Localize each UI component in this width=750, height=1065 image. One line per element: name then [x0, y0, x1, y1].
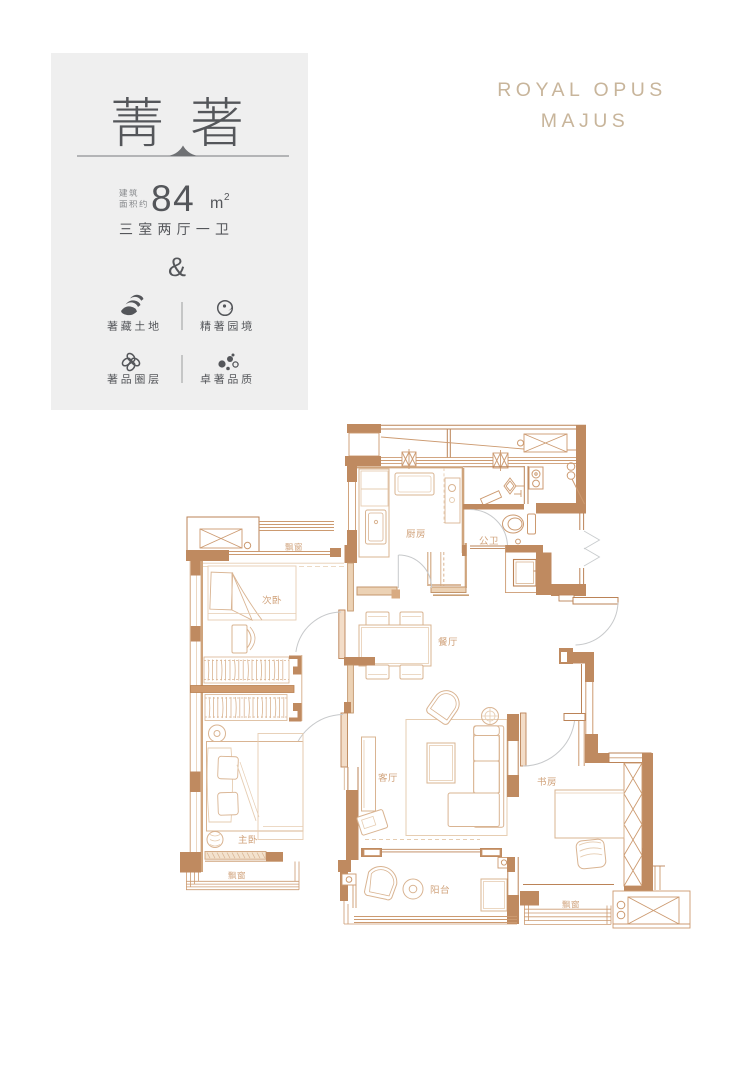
- svg-text:84: 84: [151, 178, 195, 219]
- svg-text:&: &: [168, 252, 186, 282]
- svg-text:ROYAL OPUS: ROYAL OPUS: [497, 79, 667, 101]
- svg-text:MAJUS: MAJUS: [541, 110, 630, 132]
- svg-text:2: 2: [224, 192, 230, 203]
- svg-text:m: m: [210, 195, 223, 212]
